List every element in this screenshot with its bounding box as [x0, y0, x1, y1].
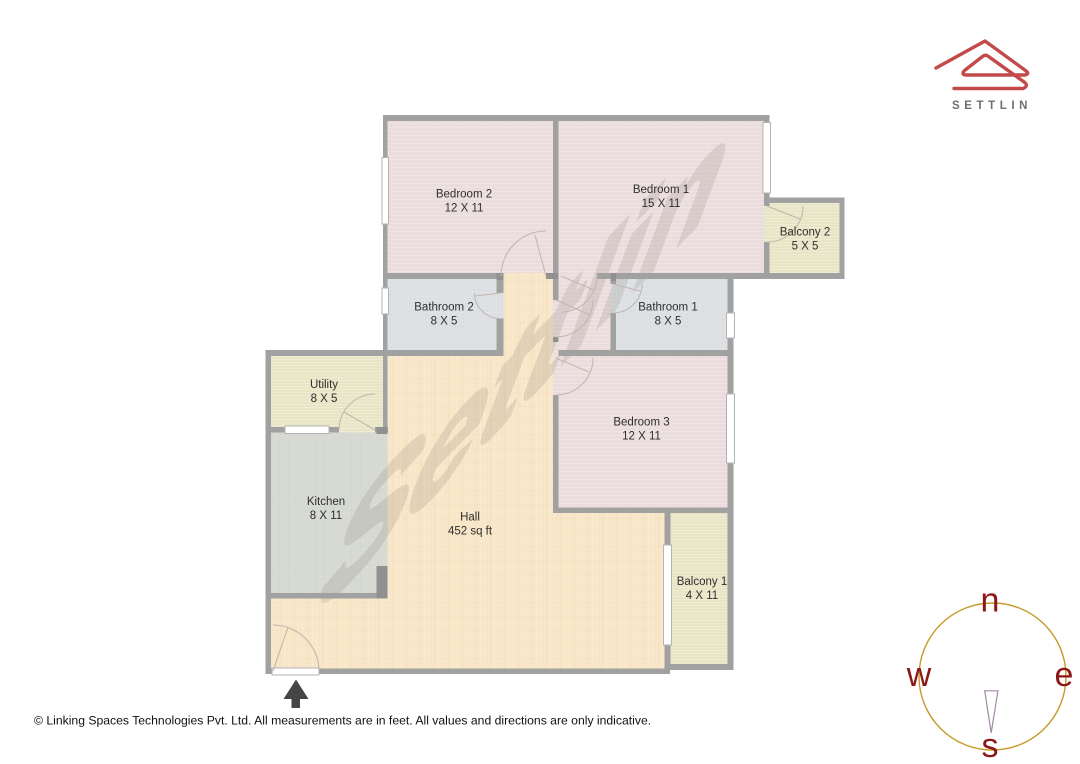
svg-text:Bathroom 2: Bathroom 2 [414, 302, 473, 314]
svg-text:8 X 5: 8 X 5 [431, 316, 458, 328]
svg-text:12 X 11: 12 X 11 [445, 203, 484, 215]
svg-text:n: n [981, 582, 1000, 620]
svg-text:SETTLIN: SETTLIN [952, 100, 1032, 112]
svg-text:Hall: Hall [460, 512, 480, 524]
svg-text:w: w [906, 656, 932, 694]
svg-text:452 sq ft: 452 sq ft [448, 526, 493, 538]
svg-text:Bathroom 1: Bathroom 1 [638, 302, 697, 314]
svg-text:12 X 11: 12 X 11 [622, 431, 661, 443]
svg-text:4 X 11: 4 X 11 [686, 590, 718, 602]
svg-text:Bedroom 1: Bedroom 1 [633, 184, 689, 196]
svg-text:Bedroom 2: Bedroom 2 [436, 189, 492, 201]
svg-text:8 X 5: 8 X 5 [311, 393, 338, 405]
svg-text:15 X 11: 15 X 11 [642, 198, 681, 210]
svg-text:8 X 11: 8 X 11 [310, 510, 342, 522]
svg-text:e: e [1055, 656, 1074, 694]
svg-text:8 X 5: 8 X 5 [655, 316, 682, 328]
svg-text:Bedroom 3: Bedroom 3 [613, 417, 669, 429]
svg-text:s: s [982, 727, 999, 764]
svg-text:5 X 5: 5 X 5 [792, 241, 819, 253]
svg-text:Utility: Utility [310, 379, 338, 391]
svg-text:Balcony 1: Balcony 1 [677, 576, 728, 588]
svg-text:Kitchen: Kitchen [307, 496, 345, 508]
svg-text:© Linking Spaces Technologies: © Linking Spaces Technologies Pvt. Ltd. … [34, 714, 651, 728]
svg-text:Balcony 2: Balcony 2 [780, 227, 831, 239]
